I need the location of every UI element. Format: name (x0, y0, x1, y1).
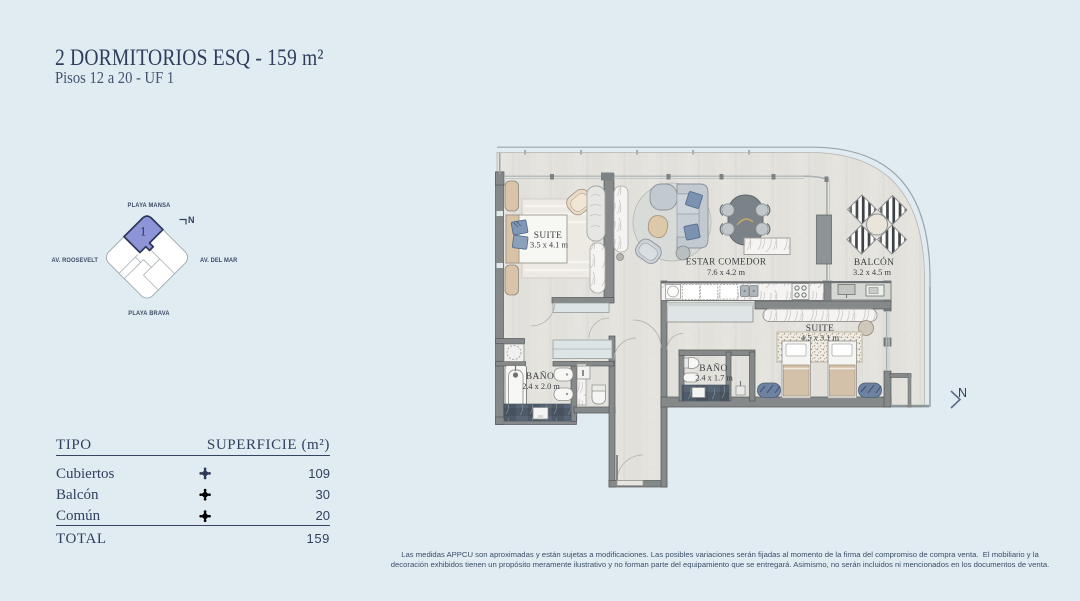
svg-text:SUITE: SUITE (534, 231, 563, 241)
svg-text:7.6 x 4.2 m: 7.6 x 4.2 m (707, 268, 745, 277)
svg-text:BAÑO: BAÑO (526, 370, 555, 382)
svg-text:2.4 x 1.7 m: 2.4 x 1.7 m (695, 374, 733, 383)
svg-text:4.5 x 3.1 m: 4.5 x 3.1 m (801, 334, 839, 343)
svg-text:3.2 x 4.5 m: 3.2 x 4.5 m (853, 268, 891, 277)
svg-text:2.4 x 2.0 m: 2.4 x 2.0 m (522, 382, 560, 391)
svg-text:N: N (958, 386, 967, 400)
svg-text:BAÑO: BAÑO (699, 362, 728, 374)
svg-text:3.5 x 4.1 m: 3.5 x 4.1 m (530, 241, 568, 250)
svg-text:SUITE: SUITE (806, 324, 835, 334)
svg-text:BALCÓN: BALCÓN (854, 256, 894, 268)
svg-text:ESTAR COMEDOR: ESTAR COMEDOR (686, 257, 767, 267)
